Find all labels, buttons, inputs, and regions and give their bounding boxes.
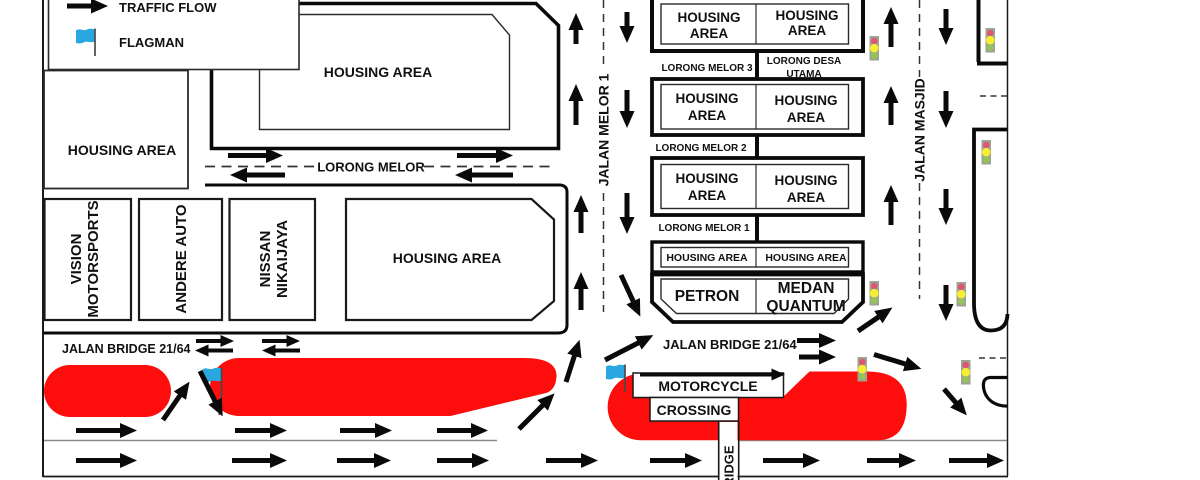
svg-text:HOUSING: HOUSING — [775, 8, 838, 23]
svg-text:MEDAN: MEDAN — [778, 280, 835, 297]
svg-text:AREA: AREA — [688, 108, 727, 123]
svg-text:TRAFFIC FLOW: TRAFFIC FLOW — [119, 0, 217, 15]
svg-text:AREA: AREA — [787, 110, 826, 125]
svg-text:VISION: VISION — [68, 234, 85, 285]
svg-text:HOUSING: HOUSING — [774, 93, 837, 108]
svg-text:HOUSING AREA: HOUSING AREA — [324, 64, 432, 80]
svg-text:CROSSING: CROSSING — [657, 402, 732, 418]
svg-text:HOUSING: HOUSING — [675, 171, 738, 186]
svg-text:HOUSING: HOUSING — [675, 91, 738, 106]
svg-text:HOUSING: HOUSING — [774, 173, 837, 188]
svg-text:HOUSING AREA: HOUSING AREA — [765, 252, 847, 264]
svg-text:JALAN BRIDGE 21/64: JALAN BRIDGE 21/64 — [62, 342, 191, 356]
svg-text:AREA: AREA — [688, 188, 727, 203]
svg-text:LORONG MELOR 3: LORONG MELOR 3 — [661, 63, 753, 74]
svg-text:MOTORSPORTS: MOTORSPORTS — [85, 200, 102, 317]
svg-text:ANDERE AUTO: ANDERE AUTO — [173, 204, 190, 314]
svg-text:JALAN BRIDGE 21/64: JALAN BRIDGE 21/64 — [663, 337, 797, 352]
svg-text:AREA: AREA — [787, 190, 826, 205]
svg-text:AREA: AREA — [690, 26, 729, 41]
svg-text:HOUSING AREA: HOUSING AREA — [68, 142, 176, 158]
svg-text:QUANTUM: QUANTUM — [766, 298, 845, 315]
svg-text:PETRON: PETRON — [675, 288, 740, 305]
svg-text:NIKAIJAYA: NIKAIJAYA — [274, 220, 291, 298]
svg-text:JALAN MASJID: JALAN MASJID — [912, 78, 928, 181]
svg-text:HOUSING: HOUSING — [677, 10, 740, 25]
svg-text:NISSAN: NISSAN — [257, 231, 274, 288]
svg-text:LORONG MELOR: LORONG MELOR — [317, 160, 425, 175]
svg-text:FLAGMAN: FLAGMAN — [119, 35, 184, 50]
svg-text:MOTORCYCLE: MOTORCYCLE — [658, 378, 757, 394]
svg-text:HOUSING AREA: HOUSING AREA — [393, 250, 501, 266]
svg-text:AREA: AREA — [788, 23, 827, 38]
svg-text:LORONG DESA: LORONG DESA — [767, 56, 841, 67]
svg-text:BRIDGE: BRIDGE — [722, 445, 737, 480]
svg-text:HOUSING AREA: HOUSING AREA — [666, 252, 748, 264]
svg-text:LORONG MELOR 2: LORONG MELOR 2 — [655, 143, 747, 154]
svg-text:JALAN MELOR 1: JALAN MELOR 1 — [596, 73, 612, 186]
svg-text:LORONG MELOR 1: LORONG MELOR 1 — [658, 223, 750, 234]
